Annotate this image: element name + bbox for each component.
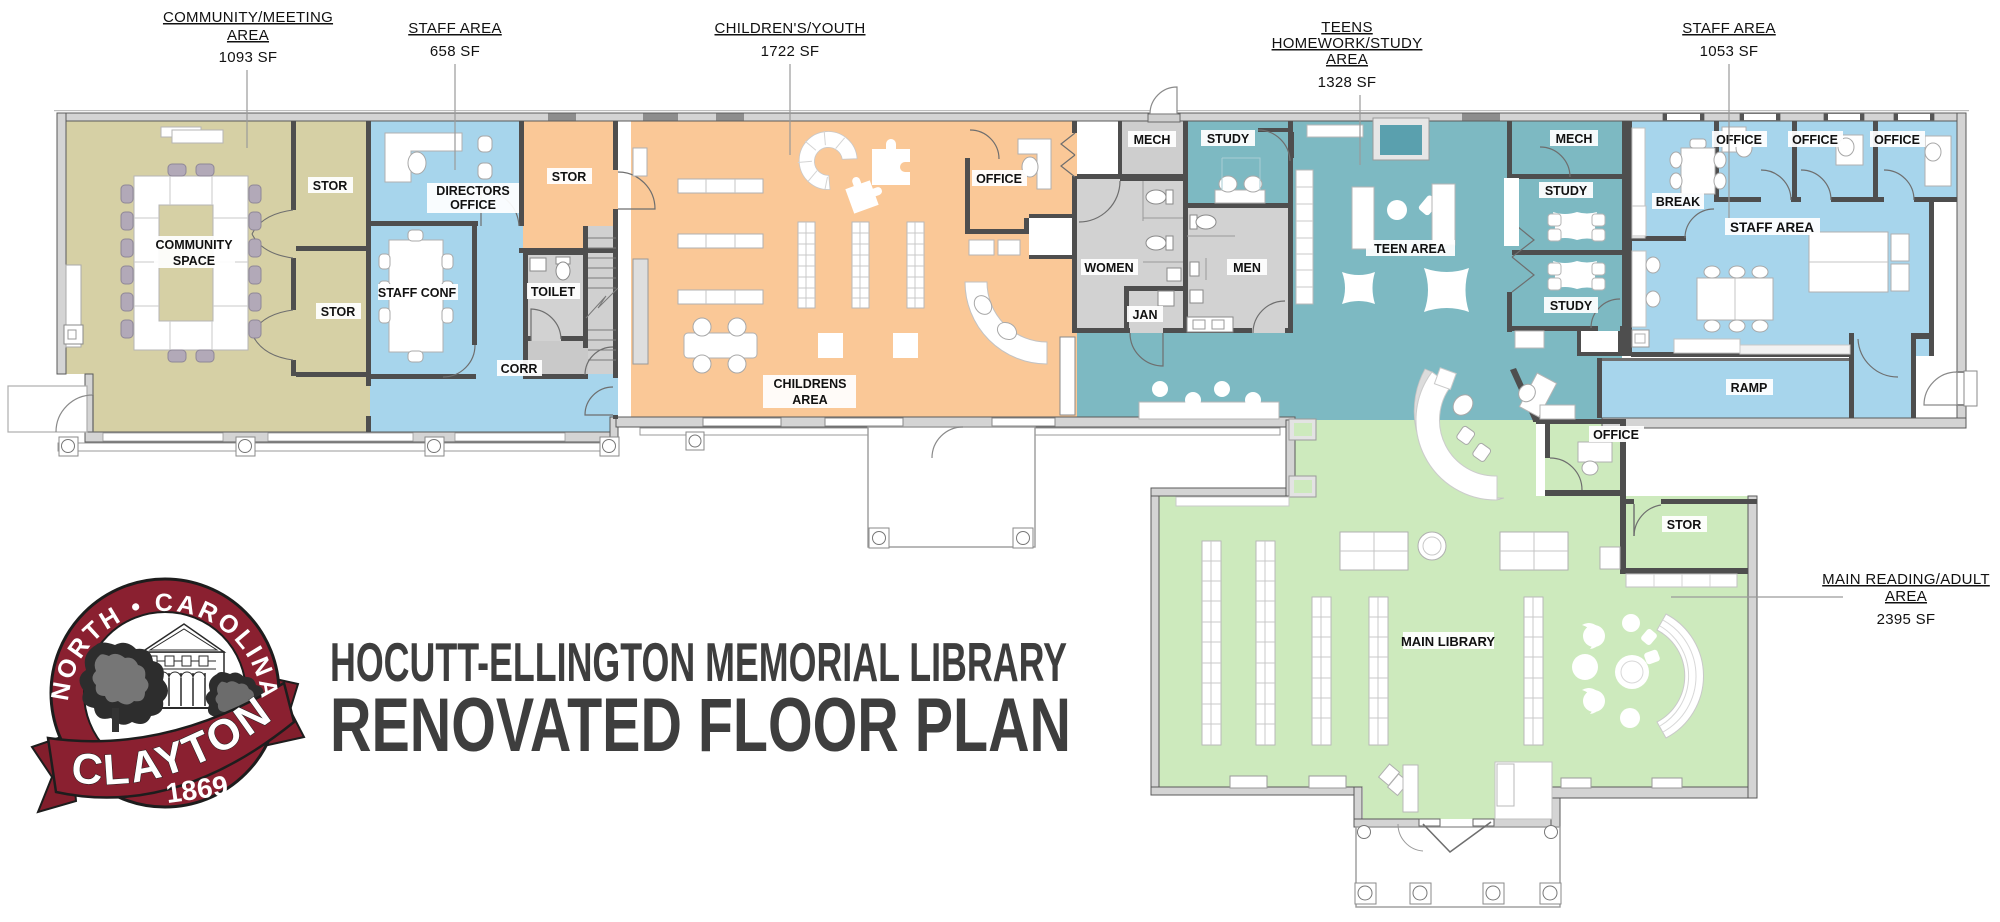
svg-text:STUDY: STUDY: [1207, 132, 1250, 146]
svg-text:COMMUNITY/MEETING: COMMUNITY/MEETING: [163, 9, 333, 26]
svg-text:TOILET: TOILET: [531, 285, 576, 299]
svg-text:OFFICE: OFFICE: [1874, 133, 1920, 147]
svg-text:MAIN READING/ADULT: MAIN READING/ADULT: [1822, 571, 1990, 588]
svg-text:RENOVATED FLOOR PLAN: RENOVATED FLOOR PLAN: [330, 683, 1071, 768]
svg-text:STOR: STOR: [1667, 518, 1702, 532]
svg-text:OFFICE: OFFICE: [450, 198, 496, 212]
svg-text:AREA: AREA: [1326, 51, 1368, 68]
svg-text:658 SF: 658 SF: [430, 43, 480, 60]
svg-text:STAFF AREA: STAFF AREA: [408, 20, 502, 37]
svg-text:TEEN AREA: TEEN AREA: [1374, 242, 1446, 256]
svg-text:RAMP: RAMP: [1731, 381, 1768, 395]
svg-text:AREA: AREA: [227, 27, 269, 44]
svg-text:MECH: MECH: [1556, 132, 1593, 146]
svg-text:HOMEWORK/STUDY: HOMEWORK/STUDY: [1272, 35, 1423, 52]
svg-text:AREA: AREA: [792, 393, 827, 407]
svg-text:1093 SF: 1093 SF: [219, 49, 278, 66]
svg-text:STUDY: STUDY: [1550, 299, 1593, 313]
svg-text:1722 SF: 1722 SF: [761, 43, 820, 60]
svg-text:OFFICE: OFFICE: [1593, 428, 1639, 442]
svg-text:WOMEN: WOMEN: [1084, 261, 1133, 275]
svg-text:DIRECTORS: DIRECTORS: [436, 184, 509, 198]
svg-text:STOR: STOR: [321, 305, 356, 319]
svg-text:SPACE: SPACE: [173, 254, 215, 268]
svg-text:MAIN LIBRARY: MAIN LIBRARY: [1401, 634, 1495, 649]
svg-text:STAFF AREA: STAFF AREA: [1682, 20, 1776, 37]
svg-text:OFFICE: OFFICE: [1792, 133, 1838, 147]
svg-text:TEENS: TEENS: [1321, 19, 1373, 36]
svg-text:CHILDRENS: CHILDRENS: [774, 377, 847, 391]
svg-text:MECH: MECH: [1134, 133, 1171, 147]
svg-text:STAFF AREA: STAFF AREA: [1730, 220, 1814, 235]
svg-text:STUDY: STUDY: [1545, 184, 1588, 198]
svg-text:1053 SF: 1053 SF: [1700, 43, 1759, 60]
svg-text:2395 SF: 2395 SF: [1877, 611, 1936, 628]
svg-text:MEN: MEN: [1233, 261, 1261, 275]
svg-text:AREA: AREA: [1885, 588, 1927, 605]
svg-text:COMMUNITY: COMMUNITY: [155, 238, 233, 252]
svg-text:OFFICE: OFFICE: [1716, 133, 1762, 147]
svg-text:BREAK: BREAK: [1656, 195, 1700, 209]
svg-text:OFFICE: OFFICE: [976, 172, 1022, 186]
svg-text:CHILDREN'S/YOUTH: CHILDREN'S/YOUTH: [714, 20, 865, 37]
svg-text:STOR: STOR: [313, 179, 348, 193]
svg-text:JAN: JAN: [1132, 308, 1157, 322]
svg-text:STAFF CONF: STAFF CONF: [378, 286, 457, 300]
svg-text:STOR: STOR: [552, 170, 587, 184]
svg-text:CORR: CORR: [501, 362, 538, 376]
svg-text:1328 SF: 1328 SF: [1318, 74, 1377, 91]
